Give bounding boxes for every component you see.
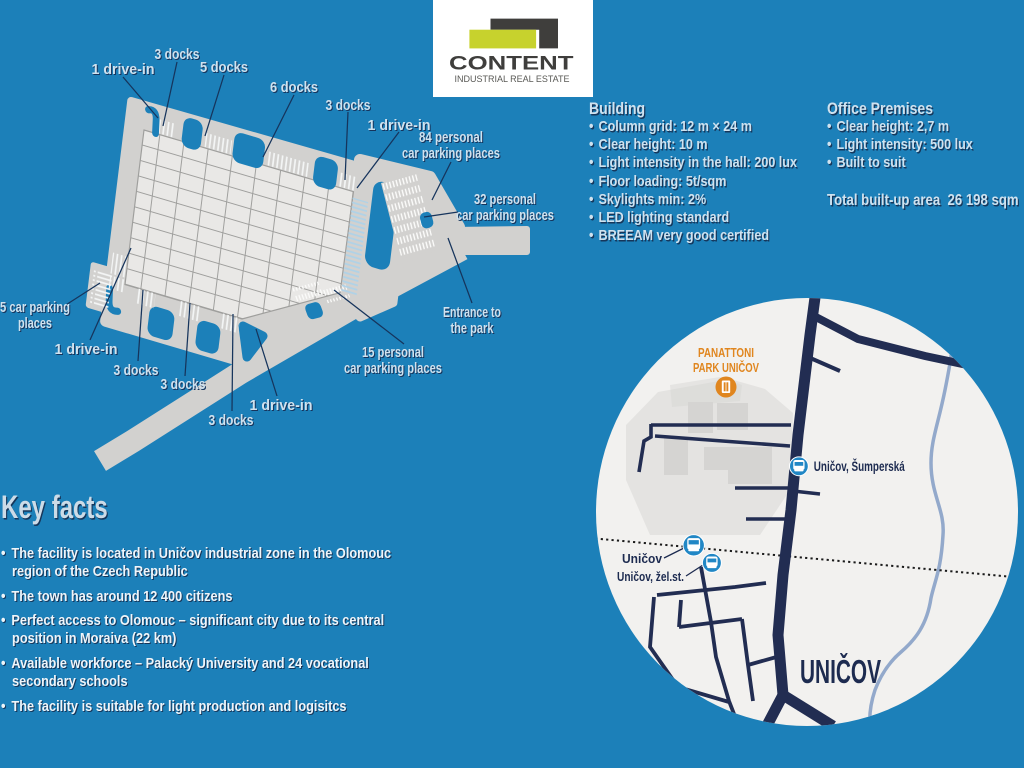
svg-text:Uničov: Uničov (622, 551, 663, 566)
svg-text:the park: the park (451, 321, 495, 337)
svg-text:1 drive-in: 1 drive-in (250, 398, 313, 414)
svg-text:car parking places: car parking places (344, 361, 442, 377)
svg-text:3 docks: 3 docks (209, 413, 254, 429)
svg-text:3 docks: 3 docks (326, 98, 371, 114)
svg-text:car parking places: car parking places (402, 146, 500, 162)
svg-text:3 docks: 3 docks (155, 47, 200, 63)
svg-text:UNIČOV: UNIČOV (800, 652, 881, 690)
svg-text:1 drive-in: 1 drive-in (55, 342, 118, 358)
svg-text:1 drive-in: 1 drive-in (92, 62, 155, 78)
svg-text:PARK UNIČOV: PARK UNIČOV (693, 360, 759, 375)
svg-text:15 personal: 15 personal (362, 345, 424, 361)
svg-text:Uničov, žel.st.: Uničov, žel.st. (617, 569, 684, 584)
svg-text:5 car parking: 5 car parking (0, 300, 70, 316)
svg-text:6 docks: 6 docks (270, 80, 318, 96)
svg-text:84 personal: 84 personal (419, 130, 483, 146)
svg-text:places: places (18, 316, 52, 332)
svg-text:Entrance to: Entrance to (443, 305, 501, 321)
svg-text:3 docks: 3 docks (161, 377, 206, 393)
svg-text:5 docks: 5 docks (200, 60, 248, 76)
svg-text:3 docks: 3 docks (114, 363, 159, 379)
svg-text:Uničov, Šumperská: Uničov, Šumperská (814, 459, 905, 474)
svg-text:car parking places: car parking places (456, 208, 554, 224)
svg-text:32 personal: 32 personal (474, 192, 536, 208)
svg-text:PANATTONI: PANATTONI (698, 345, 754, 360)
